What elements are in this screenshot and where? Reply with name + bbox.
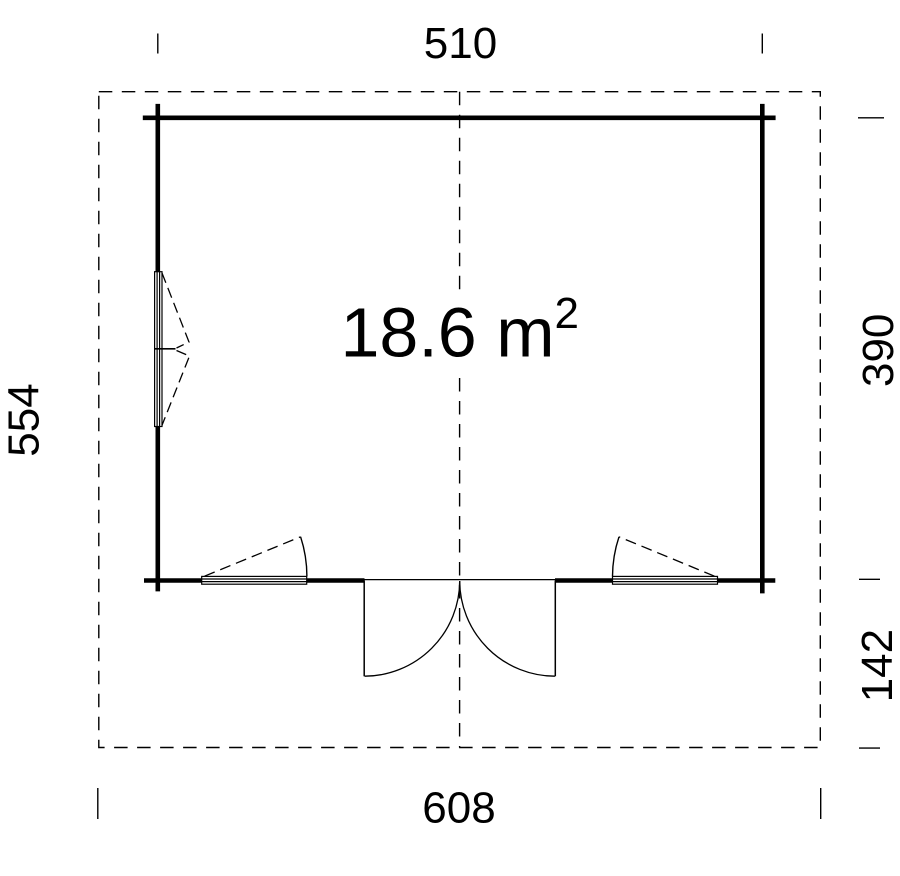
svg-text:510: 510 — [424, 19, 497, 68]
svg-text:142: 142 — [853, 629, 900, 702]
svg-text:608: 608 — [422, 783, 495, 832]
svg-text:18.6 m2: 18.6 m2 — [341, 289, 579, 372]
svg-text:390: 390 — [854, 314, 900, 387]
svg-text:554: 554 — [0, 383, 49, 456]
